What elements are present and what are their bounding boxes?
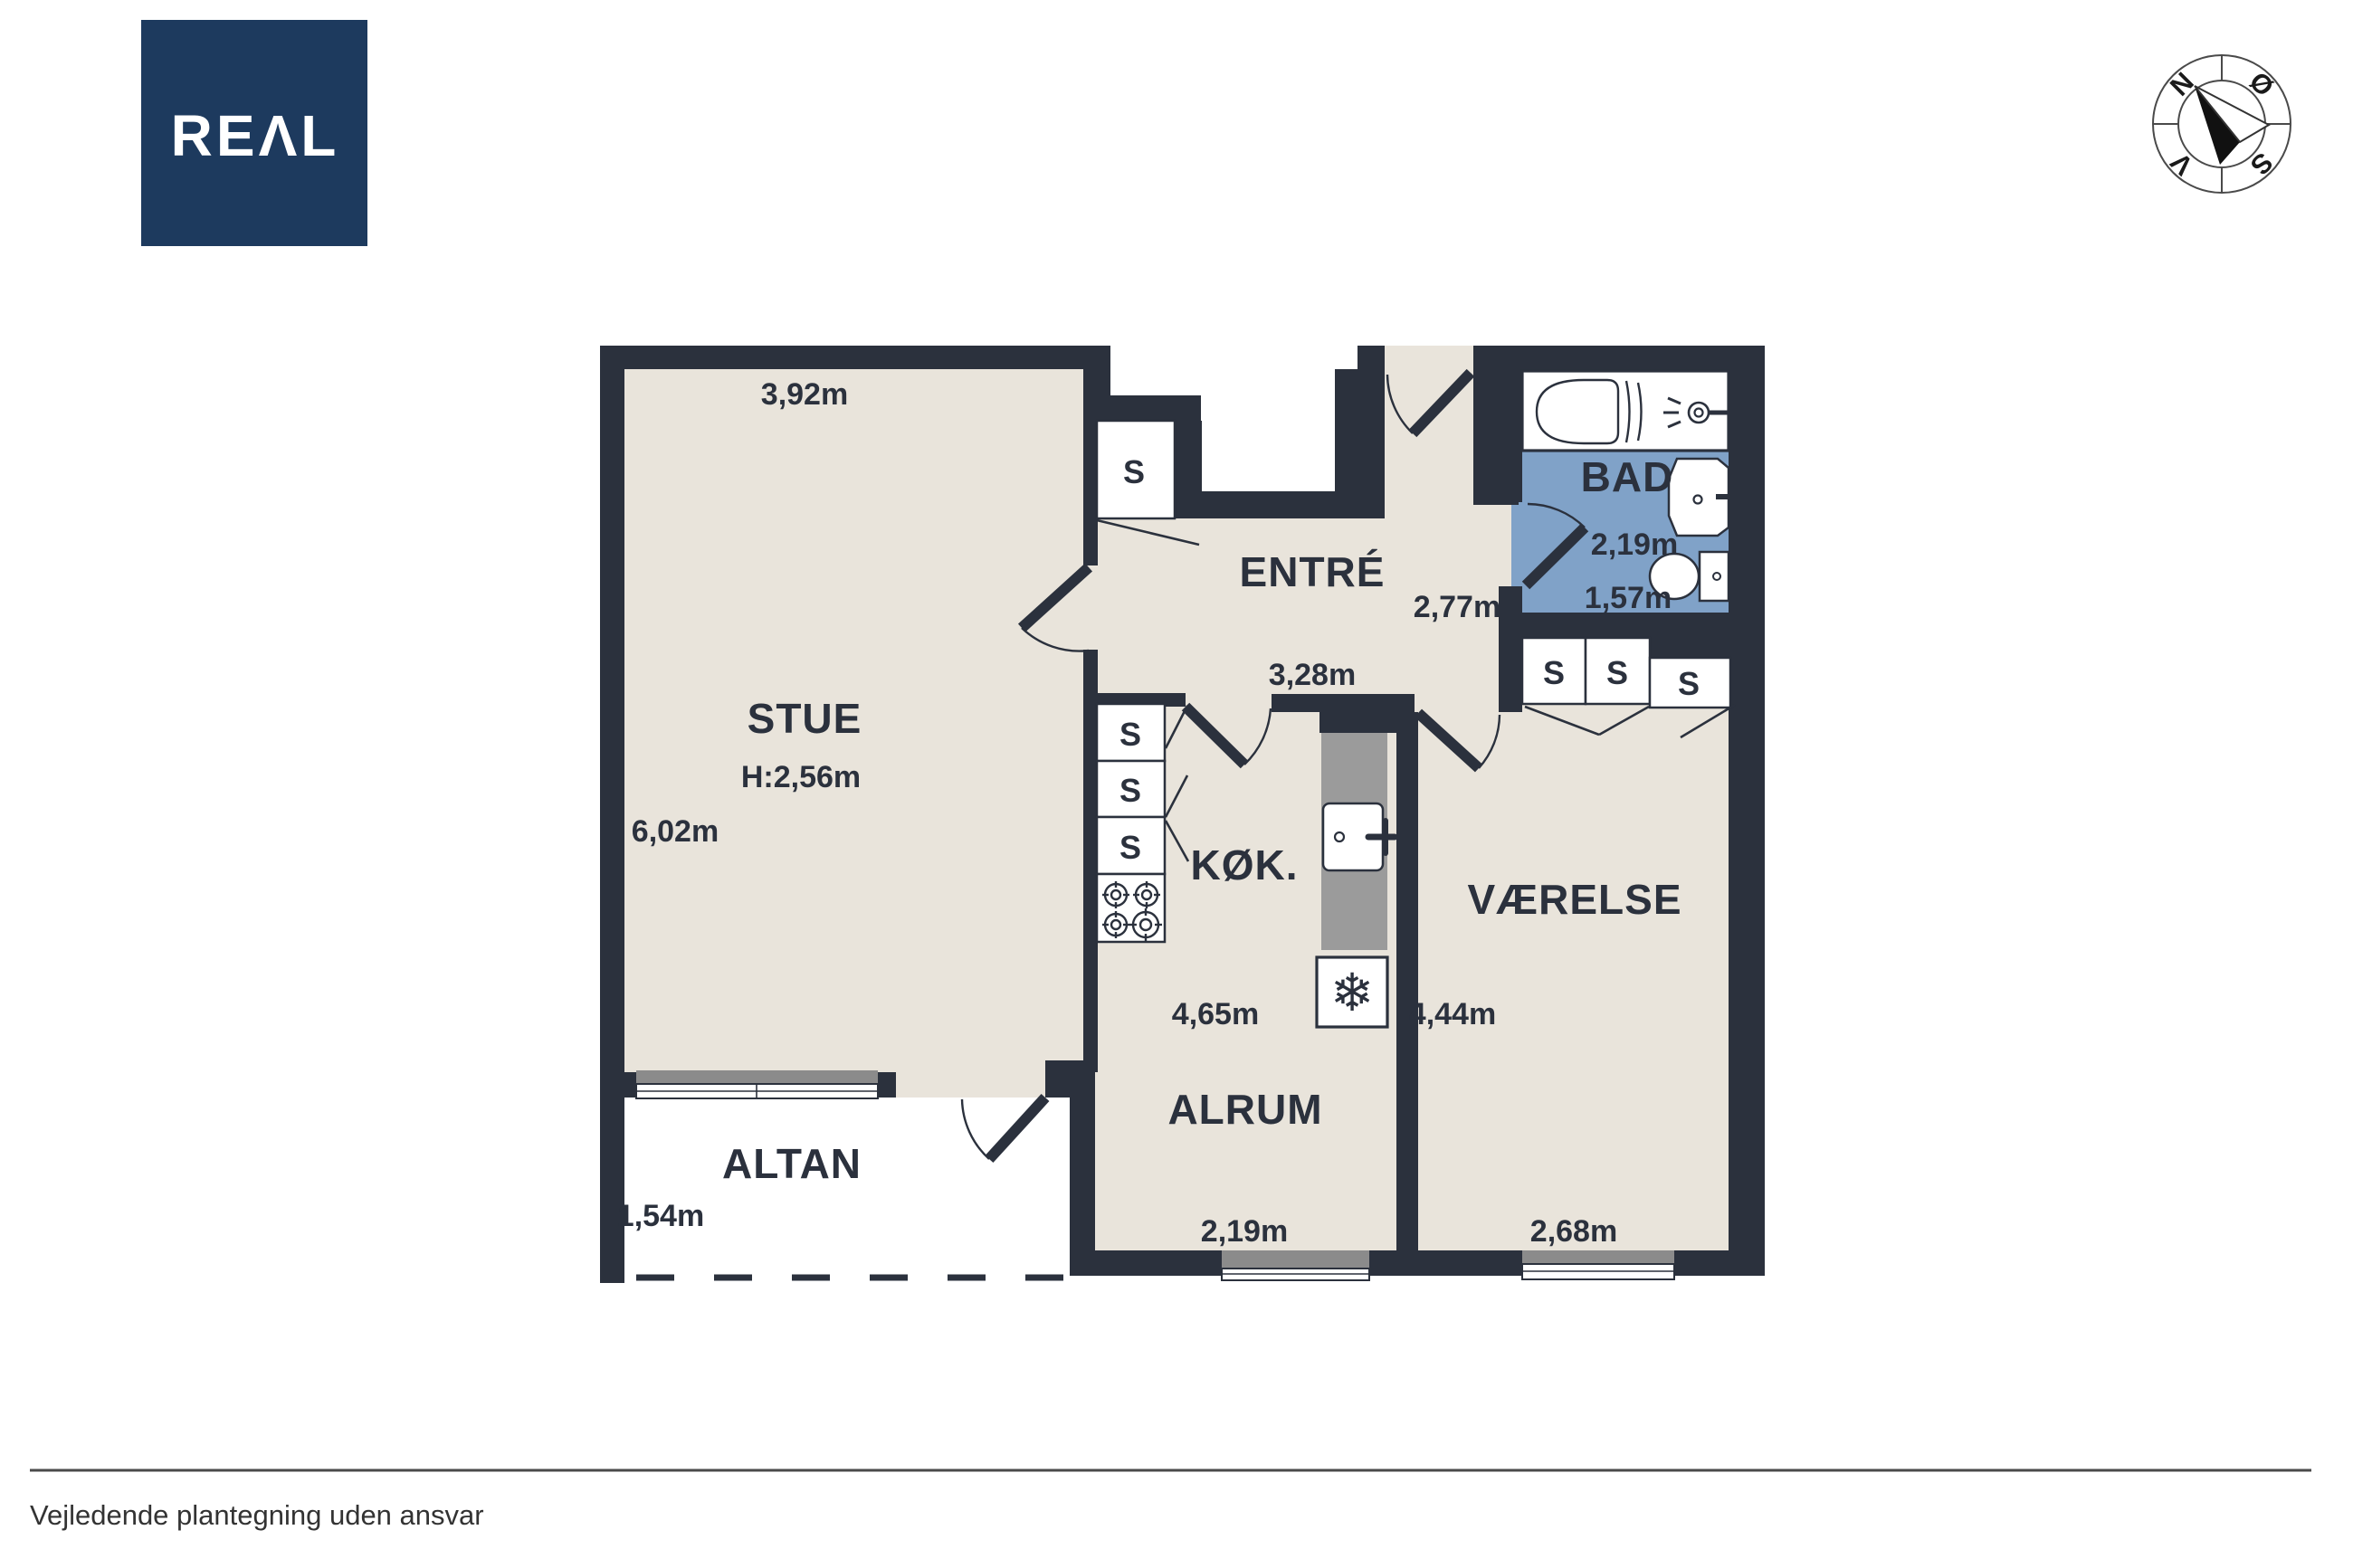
wall-entrance-stub-left xyxy=(1335,369,1385,518)
closet-vaerelse-3-label: S xyxy=(1678,665,1700,702)
wall-left-exterior xyxy=(600,346,624,1283)
wall-entre-south xyxy=(1272,694,1415,712)
logo-text: REΛL xyxy=(171,103,340,168)
stue-height-label: H:2,56m xyxy=(741,760,861,794)
vaerelse-name-label: VÆRELSE xyxy=(1467,876,1681,923)
closet-kok-1-label: S xyxy=(1119,716,1141,753)
entre-name-label: ENTRÉ xyxy=(1240,548,1386,595)
real-logo: REΛL xyxy=(141,20,367,246)
wall-bad-left-upper xyxy=(1499,373,1522,502)
entre-width-label: 2,77m xyxy=(1414,590,1500,624)
floorplan-svg: REΛL N Ø S V xyxy=(0,0,2353,1568)
stue-length-label: 6,02m xyxy=(632,814,719,849)
altan-name-label: ALTAN xyxy=(722,1140,862,1187)
stue-width-label: 3,92m xyxy=(761,377,848,412)
wall-closet-top xyxy=(1110,395,1201,421)
alrum-name-label: ALRUM xyxy=(1167,1086,1322,1133)
closet-vaerelse-2-label: S xyxy=(1606,654,1628,691)
closet-vaerelse-1-label: S xyxy=(1543,654,1565,691)
floorplan-page: REΛL N Ø S V xyxy=(0,0,2353,1568)
bad-width-label: 2,19m xyxy=(1591,527,1678,562)
wall-stue-ne xyxy=(1083,346,1110,421)
wall-top-right xyxy=(1499,346,1765,373)
wall-top-stue xyxy=(600,346,1110,369)
window-vaerelse xyxy=(1522,1250,1674,1279)
wall-right-exterior xyxy=(1729,346,1765,1276)
window-stue-altan xyxy=(636,1070,878,1098)
bad-name-label: BAD xyxy=(1581,453,1674,500)
kok-name-label: KØK. xyxy=(1191,841,1299,889)
freezer-snowflake-icon: ❄ xyxy=(1330,962,1375,1023)
entre-length-label: 3,28m xyxy=(1269,658,1356,692)
wall-alrum-left xyxy=(1070,1060,1095,1276)
stue-name-label: STUE xyxy=(748,695,862,742)
wall-kok-vaerelse-divider xyxy=(1396,712,1418,1250)
compass-rose-icon: N Ø S V xyxy=(2153,55,2291,193)
wall-bad-step xyxy=(1650,638,1729,658)
kok-length-label: 4,65m xyxy=(1172,997,1259,1031)
alrum-width-label: 2,19m xyxy=(1201,1214,1288,1249)
wall-stue-east-lower xyxy=(1083,650,1098,1072)
wall-bad-bottom xyxy=(1499,613,1729,638)
altan-depth-label: 1,54m xyxy=(617,1199,704,1233)
room-altan-floor xyxy=(624,1098,1070,1283)
vaerelse-width-label: 2,68m xyxy=(1530,1214,1617,1249)
wall-closet-right xyxy=(1175,421,1202,518)
wall-counter-top xyxy=(1319,712,1396,733)
window-alrum xyxy=(1222,1250,1369,1280)
wall-entrance-stub-left-top xyxy=(1357,346,1385,373)
footer-disclaimer: Vejledende plantegning uden ansvar xyxy=(30,1499,484,1531)
closet-kok-2-label: S xyxy=(1119,772,1141,809)
closet-kok-3-label: S xyxy=(1119,829,1141,866)
wall-stue-east-upper xyxy=(1083,518,1098,565)
vaerelse-length-label: 4,44m xyxy=(1409,997,1496,1031)
wall-bad-left-lower xyxy=(1499,586,1522,712)
bad-length-label: 1,57m xyxy=(1585,581,1672,615)
closet-entre-label: S xyxy=(1123,453,1145,490)
wall-closet-left xyxy=(1083,421,1097,518)
